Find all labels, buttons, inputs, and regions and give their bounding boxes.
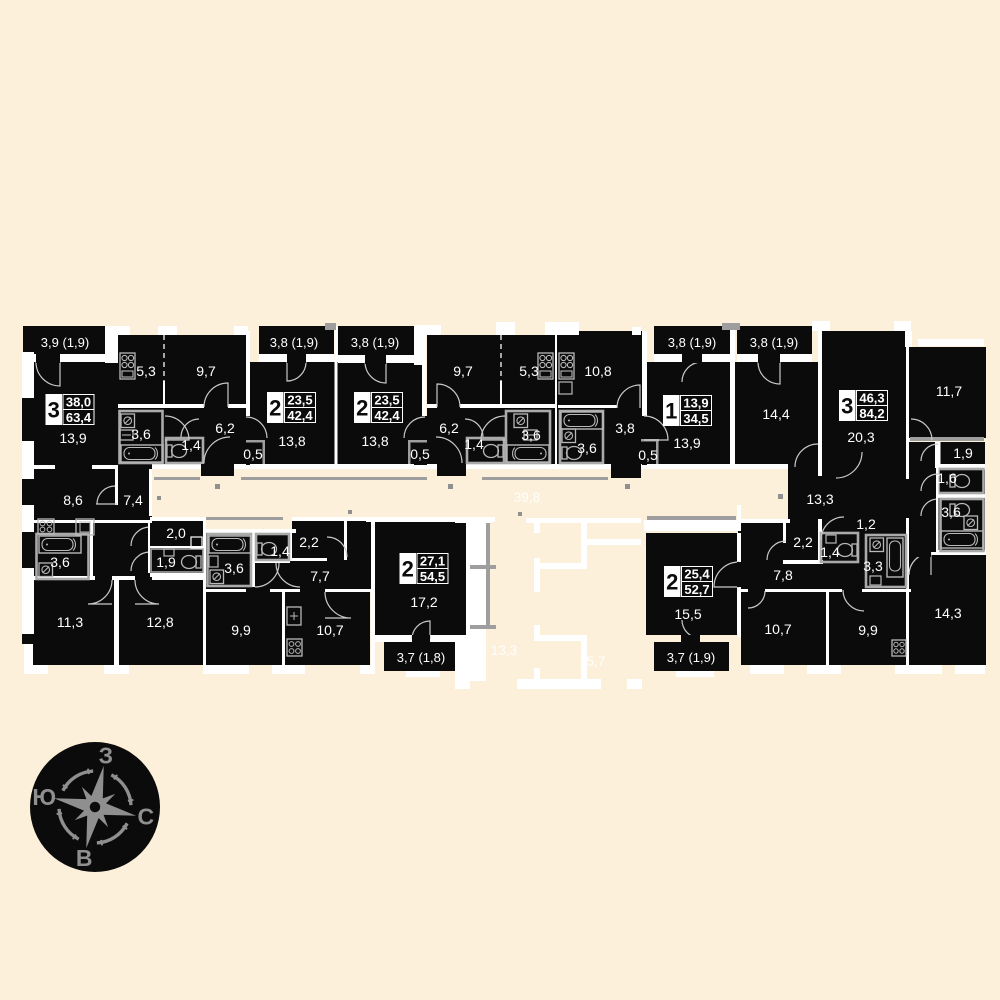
svg-text:13,3: 13,3 <box>491 643 517 658</box>
svg-text:7,4: 7,4 <box>123 492 143 508</box>
svg-text:5,3: 5,3 <box>136 363 156 379</box>
svg-text:2: 2 <box>269 396 281 421</box>
svg-text:23,5: 23,5 <box>374 393 399 408</box>
svg-text:3,6: 3,6 <box>50 554 70 570</box>
svg-text:2: 2 <box>402 557 414 582</box>
svg-text:9,9: 9,9 <box>231 622 251 638</box>
svg-text:84,2: 84,2 <box>859 406 884 421</box>
svg-text:13,9: 13,9 <box>673 435 700 451</box>
svg-text:0,5: 0,5 <box>410 446 430 462</box>
svg-text:Ю: Ю <box>32 784 56 810</box>
svg-text:14,4: 14,4 <box>762 406 789 422</box>
svg-text:13,8: 13,8 <box>361 433 388 449</box>
svg-text:13,3: 13,3 <box>806 491 833 507</box>
svg-text:3,6: 3,6 <box>941 504 961 520</box>
svg-text:3,6: 3,6 <box>577 440 597 456</box>
svg-text:38,0: 38,0 <box>66 395 91 410</box>
svg-text:3,6: 3,6 <box>521 427 541 443</box>
svg-text:1,4: 1,4 <box>181 437 201 453</box>
svg-text:46,3: 46,3 <box>859 391 884 406</box>
svg-text:1,6: 1,6 <box>937 470 957 486</box>
svg-text:3,8 (1,9): 3,8 (1,9) <box>270 335 318 350</box>
svg-text:1: 1 <box>665 399 677 424</box>
svg-text:3,8 (1,9): 3,8 (1,9) <box>668 335 716 350</box>
svg-text:63,4: 63,4 <box>66 410 92 425</box>
svg-text:27,1: 27,1 <box>420 554 445 569</box>
svg-text:2,2: 2,2 <box>793 534 813 550</box>
svg-text:В: В <box>76 845 93 871</box>
svg-text:3,8 (1,9): 3,8 (1,9) <box>351 335 399 350</box>
svg-text:42,4: 42,4 <box>374 408 400 423</box>
svg-text:6,2: 6,2 <box>215 420 235 436</box>
svg-text:1,2: 1,2 <box>856 516 876 532</box>
svg-text:1,4: 1,4 <box>820 544 840 560</box>
svg-text:9,9: 9,9 <box>858 622 878 638</box>
svg-text:14,3: 14,3 <box>934 605 961 621</box>
svg-text:3: 3 <box>48 398 60 423</box>
svg-text:6,2: 6,2 <box>439 420 459 436</box>
svg-text:9,7: 9,7 <box>453 363 473 379</box>
svg-text:39,8: 39,8 <box>514 490 540 505</box>
svg-text:15,5: 15,5 <box>674 606 701 622</box>
svg-text:С: С <box>137 804 154 830</box>
svg-text:25,4: 25,4 <box>684 567 710 582</box>
svg-text:42,4: 42,4 <box>287 408 313 423</box>
svg-text:1,4: 1,4 <box>464 436 484 452</box>
svg-text:11,3: 11,3 <box>57 614 83 630</box>
svg-text:13,9: 13,9 <box>59 430 86 446</box>
svg-text:З: З <box>99 743 113 769</box>
svg-text:3,8: 3,8 <box>615 420 635 436</box>
svg-text:17,2: 17,2 <box>410 594 437 610</box>
svg-text:20,3: 20,3 <box>847 429 874 445</box>
svg-text:1,9: 1,9 <box>953 445 973 461</box>
svg-text:52,7: 52,7 <box>684 582 709 597</box>
svg-text:5,3: 5,3 <box>519 363 539 379</box>
svg-text:3,6: 3,6 <box>131 426 151 442</box>
svg-text:13,9: 13,9 <box>683 396 708 411</box>
svg-text:10,8: 10,8 <box>584 363 611 379</box>
svg-text:23,5: 23,5 <box>287 393 312 408</box>
svg-text:7,7: 7,7 <box>310 568 330 584</box>
svg-text:3,7 (1,8): 3,7 (1,8) <box>397 650 445 665</box>
svg-text:10,7: 10,7 <box>316 622 343 638</box>
svg-text:11,7: 11,7 <box>936 383 962 399</box>
svg-text:0,5: 0,5 <box>243 446 263 462</box>
svg-text:3: 3 <box>841 394 853 419</box>
svg-text:15,7: 15,7 <box>579 654 605 669</box>
svg-text:3,9 (1,9): 3,9 (1,9) <box>41 335 89 350</box>
svg-text:34,5: 34,5 <box>683 411 708 426</box>
svg-text:2: 2 <box>356 396 368 421</box>
svg-text:3,3: 3,3 <box>863 558 883 574</box>
svg-text:9,7: 9,7 <box>196 363 216 379</box>
svg-text:7,8: 7,8 <box>773 567 793 583</box>
svg-text:8,6: 8,6 <box>63 492 83 508</box>
svg-text:1,9: 1,9 <box>156 554 176 570</box>
svg-text:3,7 (1,9): 3,7 (1,9) <box>667 650 715 665</box>
svg-text:3,6: 3,6 <box>224 560 244 576</box>
svg-text:13,8: 13,8 <box>278 433 305 449</box>
svg-text:0,5: 0,5 <box>638 447 658 463</box>
svg-text:3,8 (1,9): 3,8 (1,9) <box>750 335 798 350</box>
svg-text:2,0: 2,0 <box>166 525 186 541</box>
svg-text:2: 2 <box>666 570 678 595</box>
svg-text:54,5: 54,5 <box>420 569 445 584</box>
svg-text:10,7: 10,7 <box>764 621 791 637</box>
svg-text:1,4: 1,4 <box>270 543 290 559</box>
svg-text:2,2: 2,2 <box>299 534 319 550</box>
svg-text:12,8: 12,8 <box>146 614 173 630</box>
